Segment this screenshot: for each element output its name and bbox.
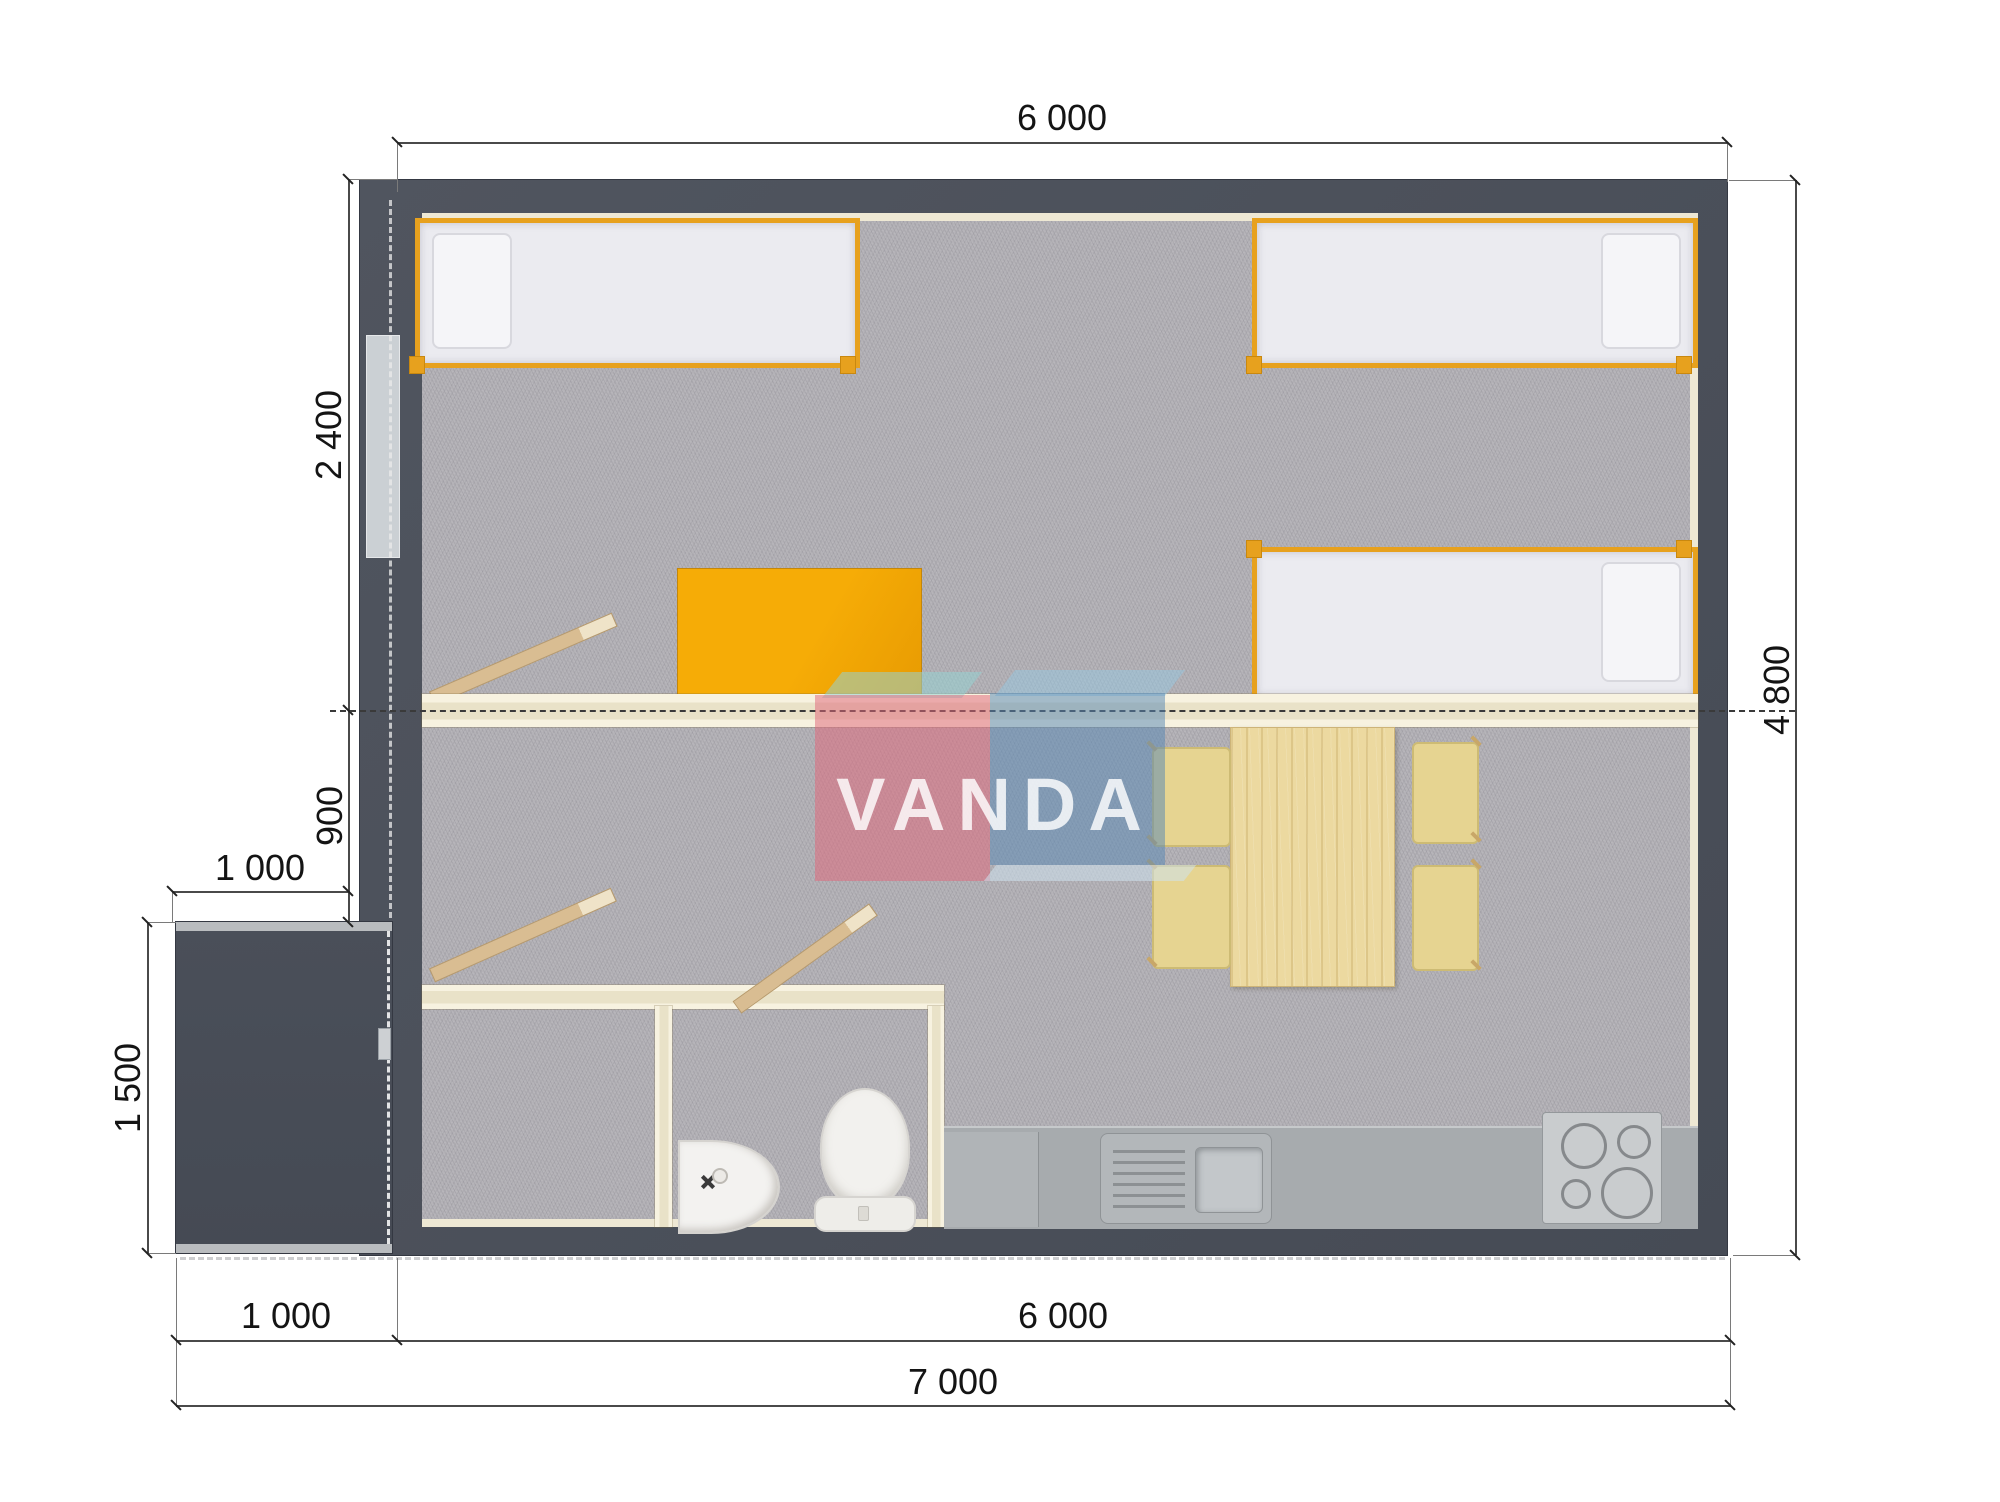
- bed-frame-nub: [840, 356, 856, 374]
- dim-label-bottom-total: 7 000: [853, 1362, 1053, 1402]
- bed-frame-nub: [1246, 540, 1262, 558]
- toilet-bowl: [820, 1088, 910, 1208]
- burner-icon: [1561, 1179, 1591, 1209]
- entry-door-handle: [378, 1028, 391, 1060]
- porch-top-edge: [176, 922, 392, 931]
- bed-frame-nub: [1676, 356, 1692, 374]
- ext-line: [172, 891, 173, 922]
- dim-line-top: [397, 142, 1727, 144]
- dim-label-top-width: 6 000: [962, 98, 1162, 138]
- ext-line: [1729, 180, 1796, 181]
- ext-line: [147, 1253, 176, 1254]
- chair-top-right: [1412, 742, 1479, 844]
- bed-middle-right-pillow: [1601, 562, 1681, 682]
- bed-top-left: [415, 218, 860, 368]
- bottom-eaves-dashed-line: [180, 1257, 1725, 1260]
- dim-label-left-upper: 2 400: [309, 355, 349, 515]
- chair-bottom-right: [1412, 865, 1479, 971]
- porch: [176, 922, 392, 1253]
- drainboard-icon: [1113, 1150, 1185, 1208]
- bed-frame-nub: [409, 356, 425, 374]
- ext-line: [147, 922, 176, 923]
- stove: [1542, 1112, 1662, 1224]
- dining-table: [1230, 727, 1395, 987]
- burner-icon: [1601, 1167, 1653, 1219]
- dim-label-bottom-porch: 1 000: [211, 1296, 361, 1336]
- kitchen-sink-basin: [1195, 1147, 1263, 1213]
- porch-bottom-edge: [176, 1244, 392, 1253]
- burner-icon: [1617, 1125, 1651, 1159]
- bed-top-right-pillow: [1601, 233, 1681, 349]
- bathroom-top-wall: [422, 985, 944, 1009]
- ext-line: [397, 1258, 398, 1340]
- ext-line: [1733, 1255, 1796, 1256]
- dim-label-right-height: 4 800: [1757, 610, 1797, 770]
- ext-line: [1727, 142, 1728, 182]
- ext-line: [397, 142, 398, 192]
- dim-line-porch-width: [172, 891, 349, 893]
- ext-line: [1730, 1258, 1731, 1405]
- left-wall-window: [366, 335, 400, 558]
- bathroom-right-wall: [928, 1006, 944, 1227]
- ext-line: [348, 179, 398, 180]
- bed-middle-right: [1252, 547, 1698, 700]
- watermark-text: VANDA: [810, 762, 1180, 847]
- bathroom-divider-wall: [655, 1006, 672, 1227]
- left-eaves-dashed-line: [389, 200, 392, 918]
- bed-top-right: [1252, 218, 1698, 368]
- entry-door-dashed-line: [387, 931, 390, 1244]
- toilet-flush-button: [858, 1206, 869, 1221]
- dim-line-total: [176, 1405, 1731, 1407]
- dim-label-bottom-main: 6 000: [963, 1296, 1163, 1336]
- kitchen-counter-end-unit: [944, 1132, 1039, 1227]
- faucet-ring: [712, 1168, 728, 1184]
- bed-frame-nub: [1246, 356, 1262, 374]
- dim-line-bottom: [176, 1340, 1731, 1342]
- floor-plan-canvas: 6 000 2 400 900 1 000 1 500 4 800 1 000 …: [0, 0, 2000, 1502]
- bed-frame-nub: [1676, 540, 1692, 558]
- watermark-blue-shadow: [984, 865, 1197, 881]
- ext-line: [176, 1258, 177, 1405]
- burner-icon: [1561, 1123, 1607, 1169]
- bed-top-left-pillow: [432, 233, 512, 349]
- dim-label-porch-height: 1 500: [108, 1008, 148, 1168]
- dim-label-porch-width: 1 000: [185, 848, 335, 888]
